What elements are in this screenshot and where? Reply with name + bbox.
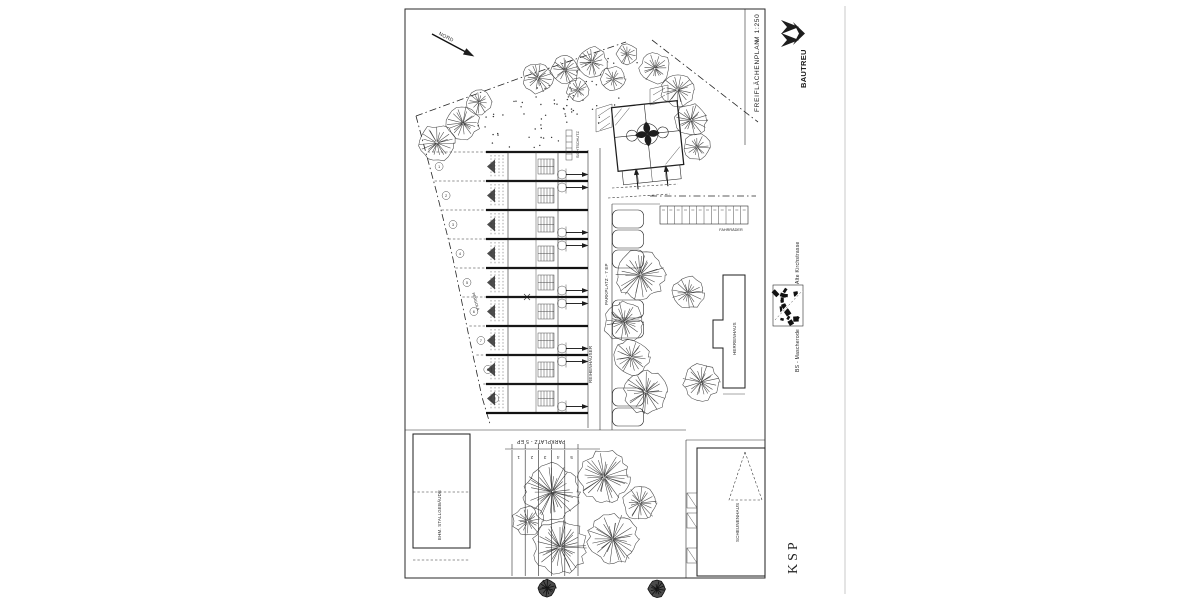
- stable-label: EHM. STALLGEBÄUDE: [437, 490, 442, 540]
- meadow-dot: [554, 103, 555, 104]
- meadow-dot: [551, 137, 552, 138]
- meadow-dot: [571, 111, 572, 112]
- meadow-dot: [535, 96, 536, 97]
- meadow-dot: [544, 88, 545, 89]
- meadow-dot: [567, 99, 568, 100]
- bottom-parking-label: PARKPLATZ - 5 EP: [516, 438, 565, 444]
- meadow-dot: [541, 118, 542, 119]
- meadow-dot: [607, 58, 608, 59]
- meadow-dot: [573, 95, 574, 96]
- meadow-dot: [485, 116, 486, 117]
- meadow-dot: [613, 63, 614, 64]
- meadow-dot: [596, 105, 597, 106]
- bike-stalls-label: FAHRRÄDER: [719, 228, 743, 232]
- meadow-dot: [493, 114, 494, 115]
- meadow-dot: [540, 137, 541, 138]
- sheet-border: [405, 9, 765, 578]
- mid-parking-label: PARKPLATZ - 7 EP: [604, 263, 609, 305]
- meadow-dot: [558, 140, 559, 141]
- meadow-dot: [565, 116, 566, 117]
- meadow-dot: [591, 81, 592, 82]
- ksp-signature: KSP: [786, 539, 801, 574]
- meadow-dot: [513, 101, 514, 102]
- meadow-dot: [528, 137, 529, 138]
- meadow-dot: [576, 113, 577, 114]
- meadow-dot: [596, 84, 597, 85]
- garden-plot-number: 4: [459, 252, 461, 256]
- bautreu-logo-text: BAUTREU: [799, 49, 808, 88]
- meadow-dot: [571, 108, 572, 109]
- manor-label: HERRENHAUS: [732, 322, 737, 355]
- meadow-dot: [534, 147, 535, 148]
- meadow-dot: [568, 96, 569, 97]
- garden-plot-number: 3: [452, 223, 454, 227]
- meadow-dot: [556, 104, 557, 105]
- meadow-dot: [523, 113, 524, 114]
- meadow-dot: [535, 128, 536, 129]
- location-map-thumbnail: [772, 285, 803, 326]
- meadow-dot: [554, 99, 555, 100]
- city-district-label: BS - Mascherode: [795, 329, 801, 372]
- meadow-dot: [599, 117, 600, 118]
- meadow-dot: [484, 126, 485, 127]
- meadow-dot: [540, 104, 541, 105]
- meadow-dot: [566, 105, 567, 106]
- dark-trees: [538, 579, 666, 597]
- map-building: [793, 316, 799, 321]
- meadow-dot: [537, 87, 538, 88]
- meadow-dot: [541, 128, 542, 129]
- meadow-dot: [614, 104, 615, 105]
- map-building: [782, 294, 788, 298]
- meadow-dot: [502, 114, 503, 115]
- meadow-dot: [497, 133, 498, 134]
- meadow-dot: [515, 101, 516, 102]
- meadow-dot: [573, 110, 574, 111]
- bautreu-logo: BAUTREU: [781, 20, 808, 88]
- street-name-label: Alte Kirchstrasse: [795, 241, 801, 284]
- map-building: [780, 318, 784, 321]
- bautreu-logo-icon: [781, 20, 805, 47]
- meadow-dot: [566, 122, 567, 123]
- meadow-dot: [493, 116, 494, 117]
- meadow-dot: [522, 102, 523, 103]
- meadow-dot: [564, 113, 565, 114]
- meadow-dot: [545, 115, 546, 116]
- site-plan-drawing: FREIFLÄCHENPLAN M 1:250 BAUTREU Alte Kir…: [0, 0, 1200, 600]
- map-building: [780, 300, 783, 303]
- garden-plot-number: 7: [480, 339, 482, 343]
- meadow-dot: [563, 108, 564, 109]
- meadow-dot: [540, 124, 541, 125]
- titleblock: FREIFLÄCHENPLAN M 1:250: [753, 14, 761, 112]
- garden-plot-number: 5: [466, 281, 468, 285]
- meadow-dot: [509, 146, 510, 147]
- stall-number: 5: [570, 455, 573, 460]
- barn-label: SCHEUNENHAUS: [735, 503, 740, 542]
- meadow-dot: [543, 137, 544, 138]
- meadow-dot: [492, 134, 493, 135]
- scanned-site-plan-page: FREIFLÄCHENPLAN M 1:250 BAUTREU Alte Kir…: [0, 0, 1200, 600]
- garden-plot-number: 2: [445, 194, 447, 198]
- meadow-dot: [636, 62, 637, 63]
- meadow-dot: [520, 106, 521, 107]
- garden-plot-number: 1: [438, 165, 440, 169]
- dark-tree: [538, 579, 556, 597]
- plan-scale: M 1:250: [754, 14, 761, 42]
- margin-annotations: Alte Kirchstrasse BS - Mascherode: [772, 241, 803, 372]
- meadow-dot: [539, 145, 540, 146]
- row-houses-label: REIHENHÄUSER: [588, 346, 593, 383]
- stall-number: 1: [517, 455, 520, 460]
- map-building: [783, 288, 788, 294]
- meadow-dot: [586, 81, 587, 82]
- stall-number: 2: [530, 455, 533, 460]
- garden-plot-number: 6: [473, 310, 475, 314]
- meadow-dot: [618, 97, 619, 98]
- meadow-dot: [497, 134, 498, 135]
- meadow-dot: [549, 85, 550, 86]
- screen-label: SICHTSCHUTZ: [576, 131, 580, 158]
- meadow-dot: [592, 109, 593, 110]
- map-building: [787, 319, 794, 326]
- dark-tree: [648, 580, 666, 598]
- stall-number: 4: [557, 455, 560, 460]
- plan-title: FREIFLÄCHENPLAN: [753, 39, 761, 112]
- meadow-dot: [492, 142, 493, 143]
- meadow-dot: [571, 89, 572, 90]
- stall-number: 3: [543, 455, 546, 460]
